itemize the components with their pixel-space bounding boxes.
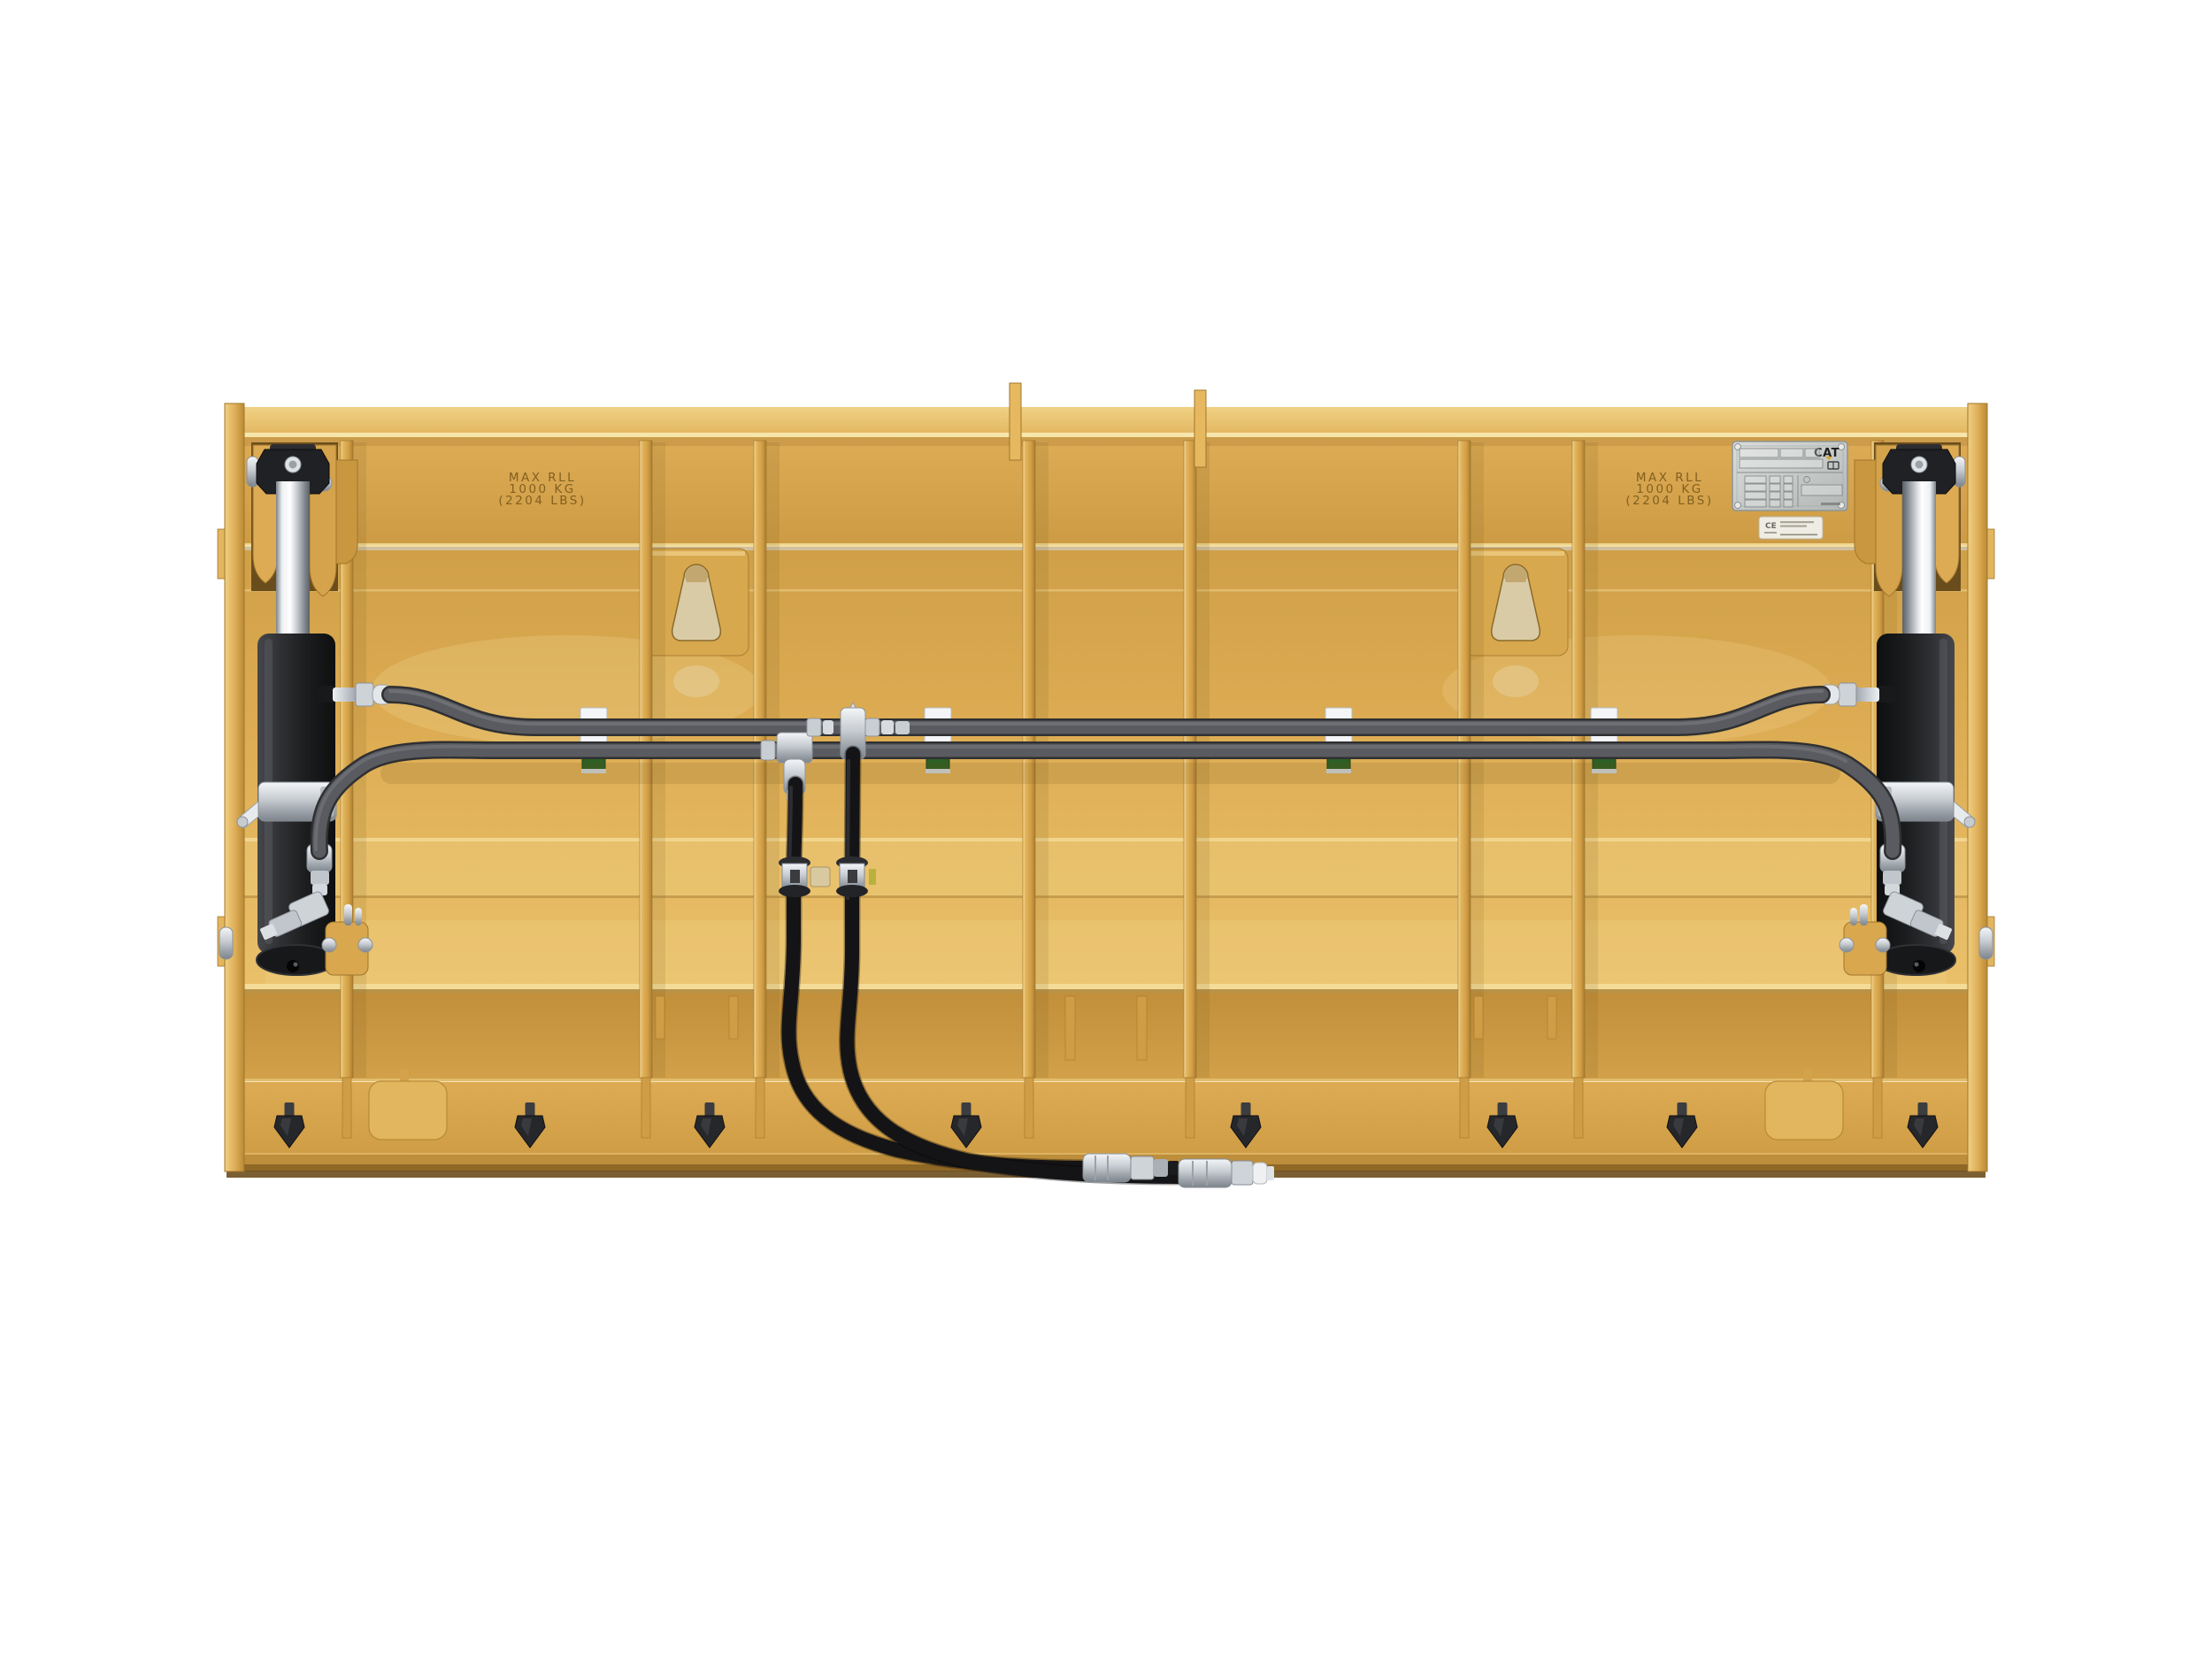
p-clamp [779,856,810,897]
top-tab-right [1194,390,1206,467]
stamp-line-3: (2204 LBS) [498,494,586,508]
product-render-page: MAX RLL 1000 KG (2204 LBS) MAX RLL 1000 … [0,0,2212,1659]
plate-screw [1735,503,1741,509]
end-plate-right [1968,403,1987,1171]
stamp-max-load-left: MAX RLL 1000 KG (2204 LBS) [498,471,586,508]
quick-coupler-2 [1179,1159,1274,1187]
top-tab-left [1010,383,1021,460]
mounting-tab-right [1765,1081,1843,1140]
ce-mark: CE [1765,522,1777,531]
rib [1572,441,1598,1138]
clamp-standoff [810,867,830,887]
center-stub [1137,996,1147,1060]
back-panel [227,407,1985,1178]
mounting-tab-left [369,1081,447,1140]
center-stub [1065,996,1075,1060]
end-plate-left [225,403,244,1171]
lower-band [227,993,1985,1081]
top-plate [227,407,1985,437]
equipment-rear-view-render: MAX RLL 1000 KG (2204 LBS) MAX RLL 1000 … [0,0,2212,1659]
stamp-line-3: (2204 LBS) [1625,494,1713,508]
bottom-strip [227,1082,1985,1155]
rib [1184,441,1210,1138]
upper-band [227,437,1985,545]
stamp-max-load-right: MAX RLL 1000 KG (2204 LBS) [1625,471,1713,508]
p-clamp [836,856,868,897]
ce-label: CE [1759,517,1823,539]
serial-plate: CAT [1732,442,1847,511]
rib [1023,441,1048,1138]
rib [754,441,780,1138]
